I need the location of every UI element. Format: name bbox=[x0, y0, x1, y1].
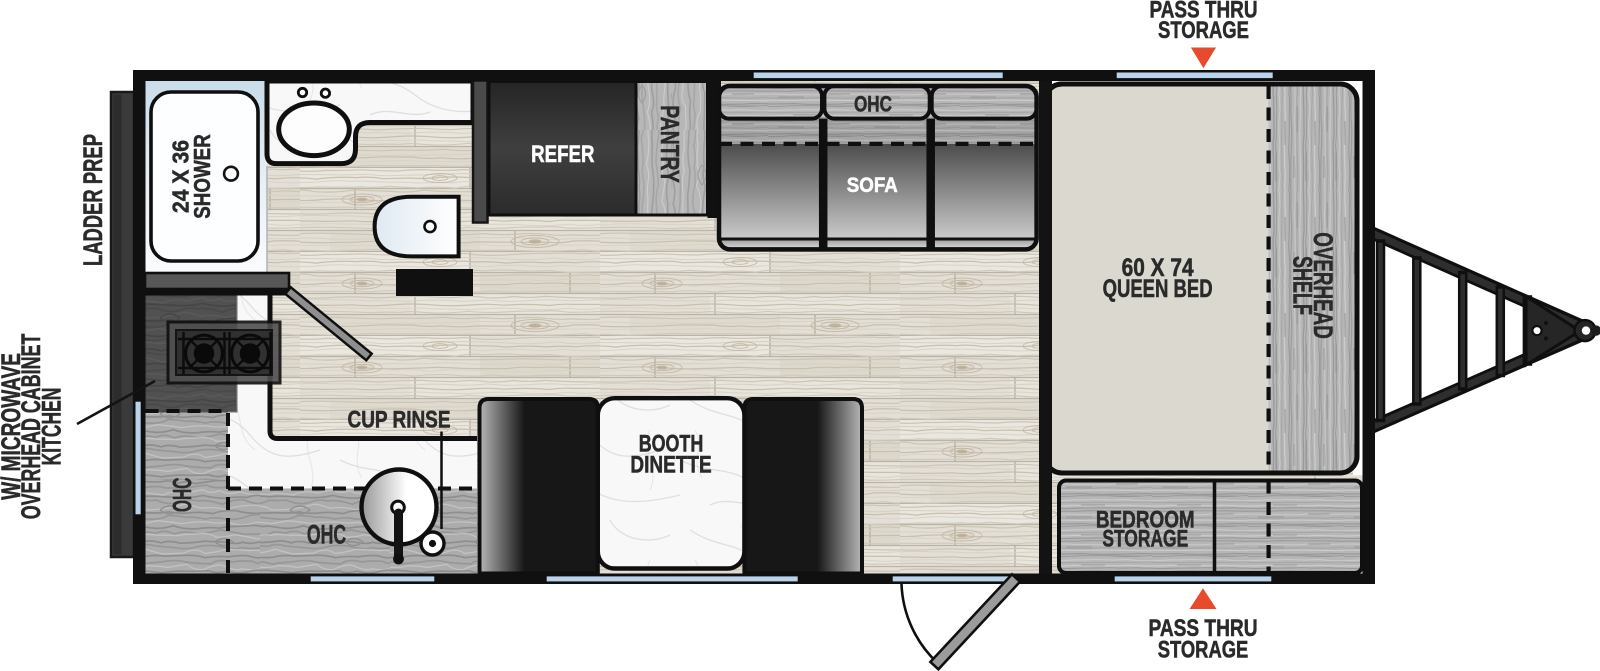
svg-text:LADDER PREP: LADDER PREP bbox=[78, 134, 108, 266]
svg-text:OHC: OHC bbox=[167, 477, 197, 512]
svg-text:PANTRY: PANTRY bbox=[655, 105, 683, 183]
svg-text:OHC: OHC bbox=[854, 91, 892, 116]
svg-text:CUP RINSE: CUP RINSE bbox=[348, 407, 451, 434]
svg-text:STORAGE: STORAGE bbox=[1158, 17, 1249, 44]
svg-text:24 X 36SHOWER: 24 X 36SHOWER bbox=[168, 134, 216, 219]
svg-text:OHC: OHC bbox=[307, 519, 346, 549]
svg-text:SOFA: SOFA bbox=[847, 173, 898, 197]
svg-text:QUEEN BED: QUEEN BED bbox=[1103, 275, 1213, 303]
svg-text:REFER: REFER bbox=[531, 141, 595, 168]
svg-text:STORAGE: STORAGE bbox=[1102, 525, 1188, 552]
svg-text:DINETTE: DINETTE bbox=[630, 451, 711, 478]
svg-text:STORAGE: STORAGE bbox=[1158, 637, 1249, 664]
